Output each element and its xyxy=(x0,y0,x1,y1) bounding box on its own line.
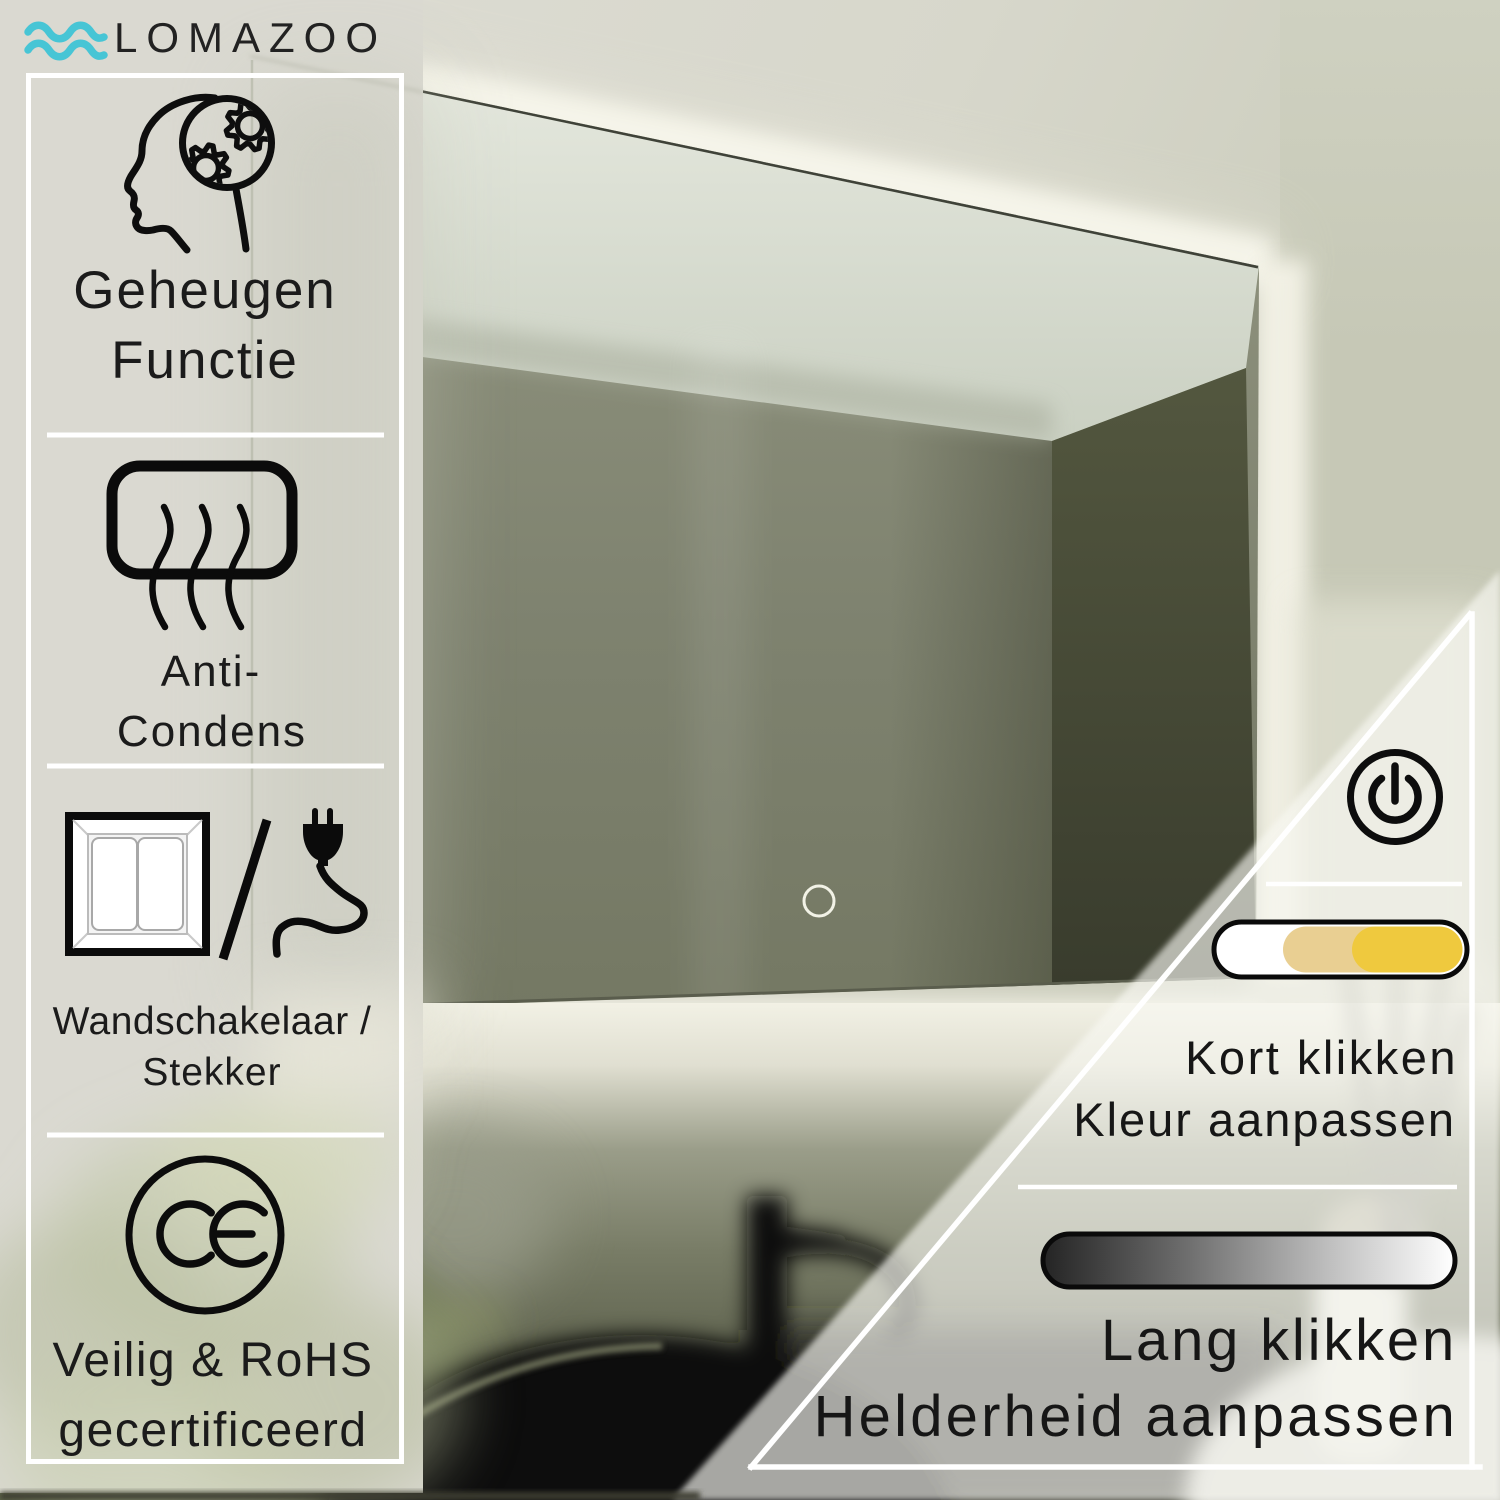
svg-text:Lang klikken: Lang klikken xyxy=(1101,1308,1457,1373)
svg-text:Functie: Functie xyxy=(111,331,299,390)
svg-text:Helderheid aanpassen: Helderheid aanpassen xyxy=(814,1384,1458,1449)
svg-text:Stekker: Stekker xyxy=(142,1051,281,1094)
svg-text:Anti-: Anti- xyxy=(161,647,261,696)
svg-text:Kleur aanpassen: Kleur aanpassen xyxy=(1073,1093,1456,1146)
svg-text:gecertificeerd: gecertificeerd xyxy=(58,1404,367,1457)
svg-text:Kort klikken: Kort klikken xyxy=(1185,1031,1458,1084)
svg-text:Geheugen: Geheugen xyxy=(73,261,337,320)
svg-text:Condens: Condens xyxy=(117,707,307,756)
svg-text:Veilig & RoHS: Veilig & RoHS xyxy=(53,1334,374,1387)
svg-text:LOMAZOO: LOMAZOO xyxy=(114,14,387,61)
svg-text:Wandschakelaar /: Wandschakelaar / xyxy=(53,1000,372,1043)
